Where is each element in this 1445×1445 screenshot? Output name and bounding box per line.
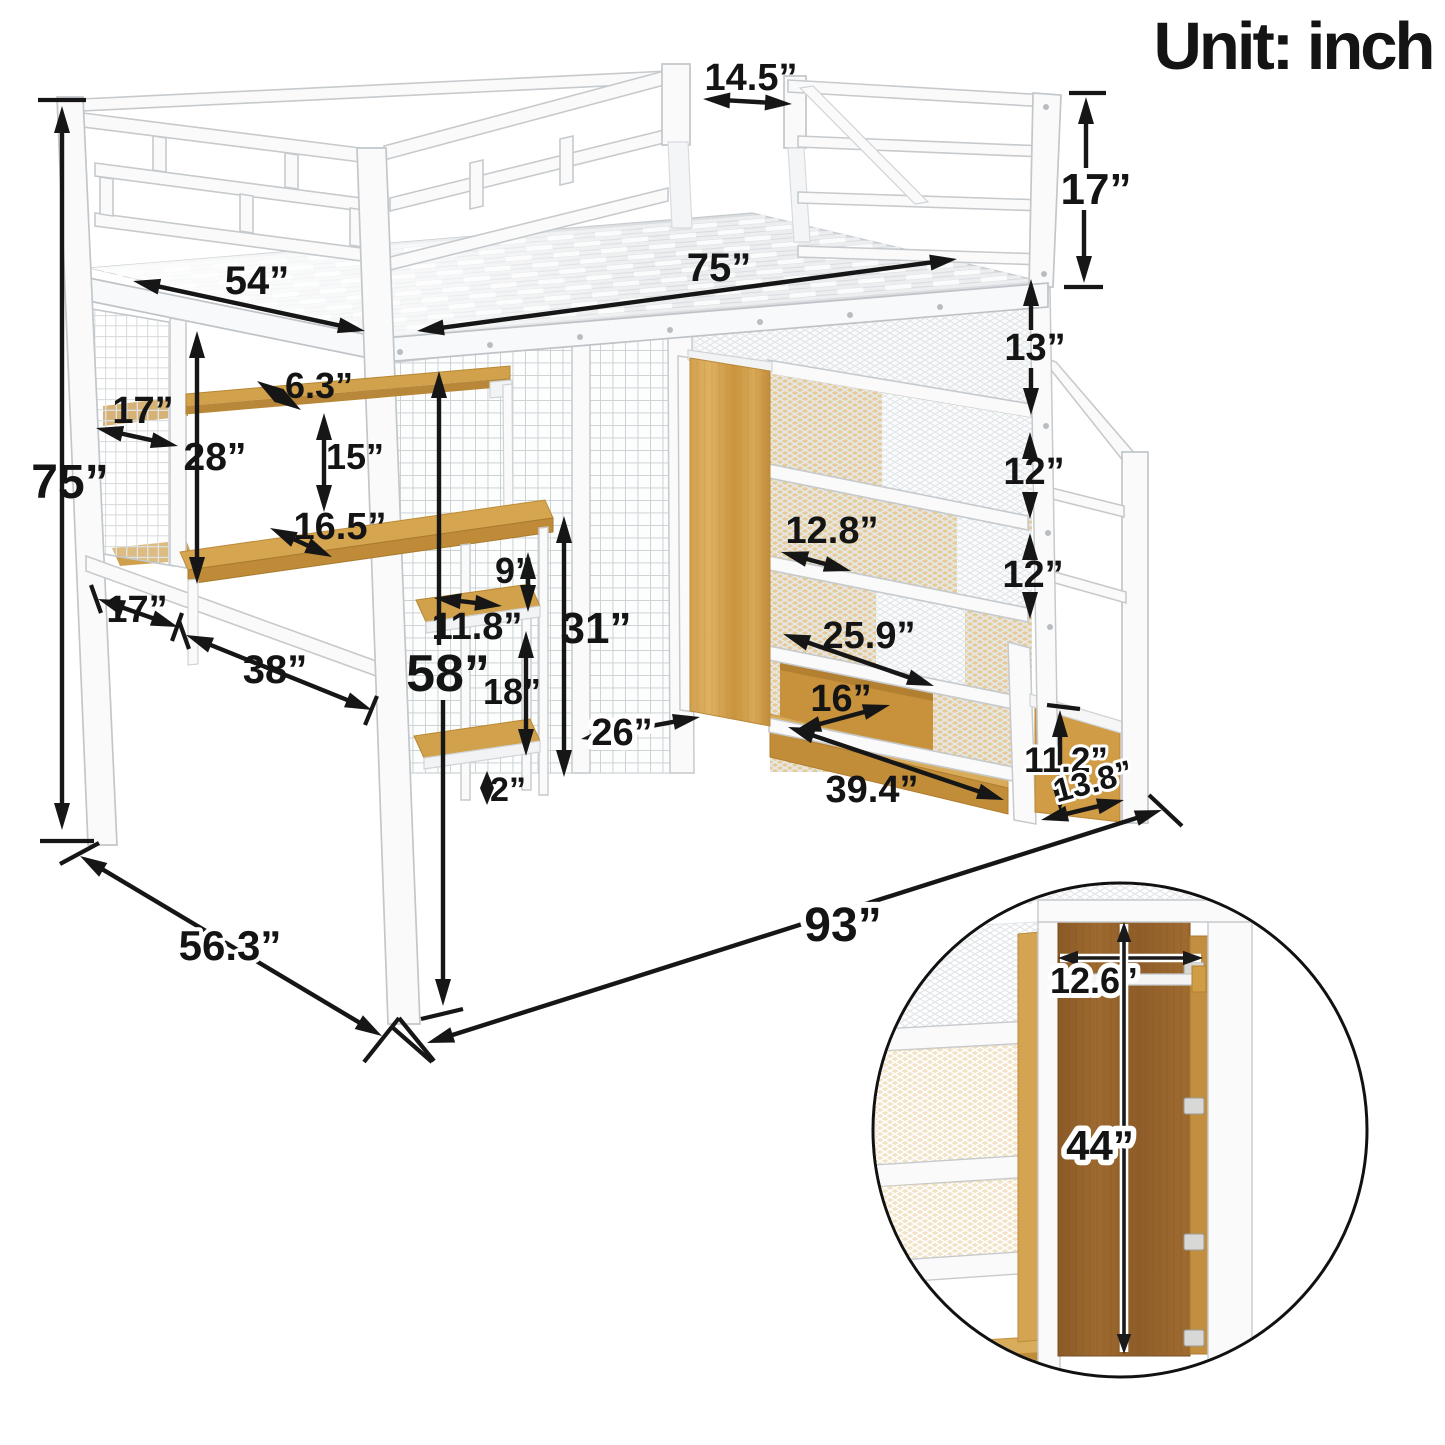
svg-text:15”: 15”	[326, 436, 384, 477]
svg-text:12.8”: 12.8”	[786, 510, 879, 552]
svg-text:17”: 17”	[112, 390, 173, 432]
svg-text:18”: 18”	[483, 671, 541, 712]
svg-text:75”: 75”	[687, 246, 752, 290]
svg-text:25.9”: 25.9”	[823, 615, 916, 657]
svg-text:31”: 31”	[561, 604, 632, 653]
svg-text:17”: 17”	[106, 589, 167, 631]
svg-text:54”: 54”	[225, 259, 290, 303]
svg-text:28”: 28”	[184, 436, 247, 479]
svg-text:26”: 26”	[591, 712, 652, 754]
svg-text:13”: 13”	[1004, 327, 1065, 369]
svg-text:2”: 2”	[490, 771, 526, 809]
svg-text:56.3”: 56.3”	[179, 922, 282, 969]
svg-text:58”: 58”	[406, 645, 490, 703]
svg-text:11.8”: 11.8”	[432, 606, 523, 648]
svg-text:44”: 44”	[1066, 1122, 1134, 1169]
svg-text:93”: 93”	[804, 899, 881, 952]
svg-text:16”: 16”	[810, 678, 871, 720]
svg-text:38”: 38”	[243, 648, 308, 692]
svg-text:6.3”: 6.3”	[285, 365, 353, 406]
svg-text:Unit: inch: Unit: inch	[1154, 9, 1433, 84]
svg-text:17”: 17”	[1061, 165, 1132, 214]
svg-text:12”: 12”	[1002, 554, 1063, 596]
svg-text:14.5”: 14.5”	[705, 57, 798, 99]
svg-text:16.5”: 16.5”	[294, 506, 387, 548]
svg-text:39.4”: 39.4”	[826, 769, 919, 811]
svg-text:75”: 75”	[31, 456, 108, 509]
svg-text:9”: 9”	[495, 550, 533, 591]
svg-text:12”: 12”	[1003, 451, 1064, 493]
